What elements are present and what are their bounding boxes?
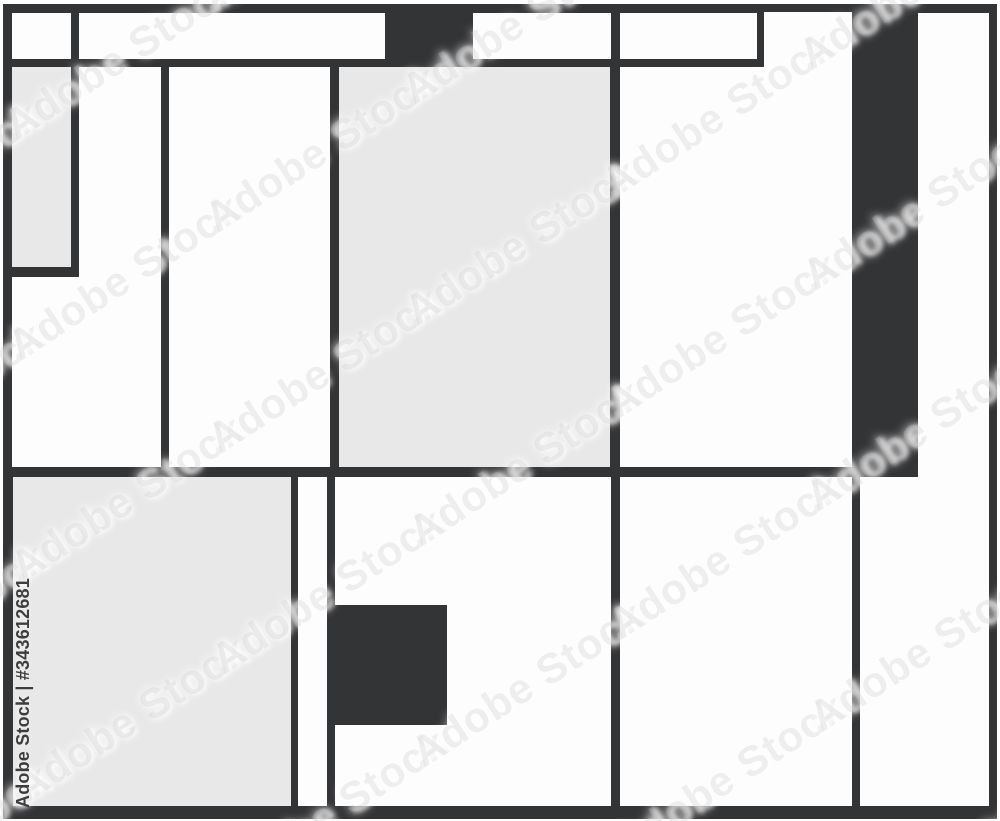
large-gray-lower (13, 477, 291, 806)
top-row-cell-3 (473, 13, 611, 59)
top-row-cell-4 (620, 13, 757, 59)
left-column-lower (12, 277, 161, 467)
dark-accent-square (330, 605, 447, 725)
dark-vertical-bar (852, 4, 918, 477)
top-row-dark-cell (385, 12, 473, 67)
lower-middle-right-cell (620, 477, 852, 806)
top-row-cell-2 (79, 13, 385, 59)
upper-middle-right-cell (620, 67, 852, 467)
narrow-strip (298, 477, 327, 806)
stock-image-canvas: Adobe StockAdobe StockAdobe StockAdobe S… (0, 0, 1000, 821)
large-gray-upper (339, 67, 610, 467)
composition-cells (0, 0, 1000, 821)
stock-id-watermark: Adobe Stock | #343612681 (13, 578, 34, 808)
top-row-cell-1 (12, 13, 71, 59)
small-gray-cell (12, 67, 71, 267)
lower-right-cell (860, 477, 989, 806)
second-column (169, 67, 330, 467)
